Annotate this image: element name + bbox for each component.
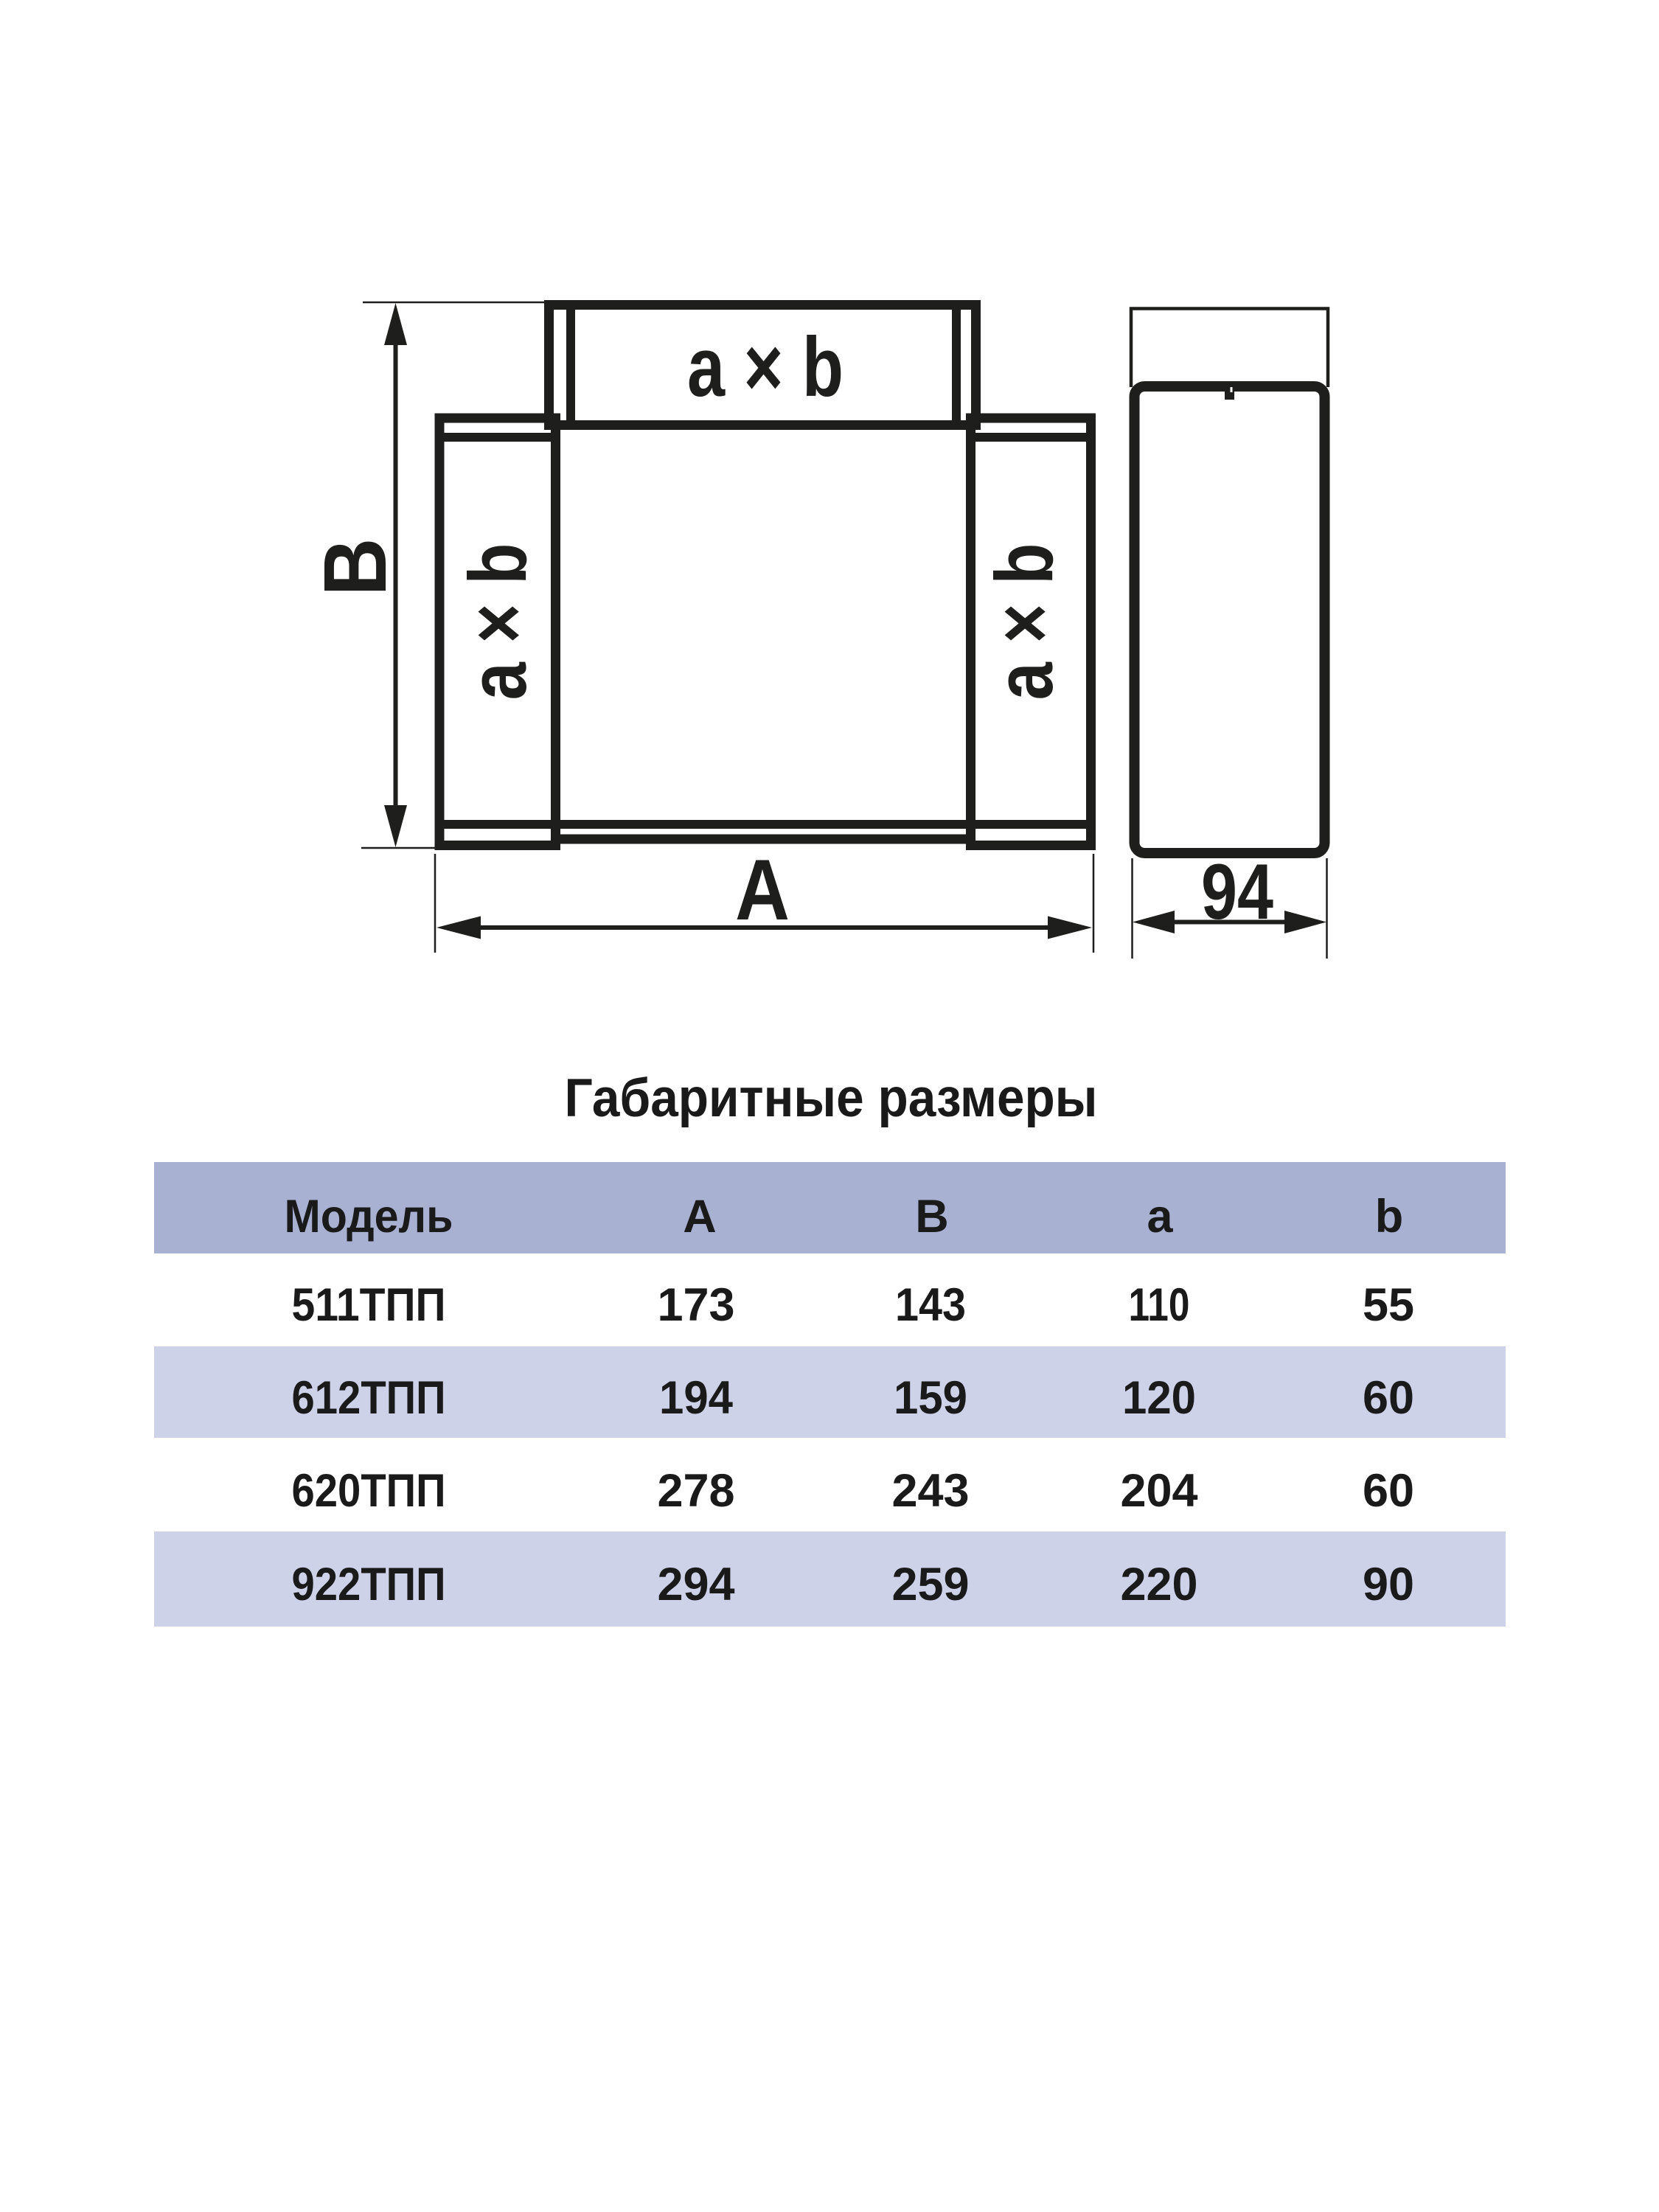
svg-text:620ТПП: 620ТПП [292, 1465, 446, 1517]
svg-text:612ТПП: 612ТПП [292, 1372, 446, 1424]
svg-text:a × b: a × b [453, 543, 543, 700]
svg-text:259: 259 [891, 1559, 969, 1610]
svg-text:922ТПП: 922ТПП [292, 1559, 446, 1610]
svg-text:a × b: a × b [687, 321, 844, 414]
svg-text:220: 220 [1120, 1559, 1197, 1610]
svg-text:Модель: Модель [285, 1191, 453, 1242]
svg-text:a: a [1147, 1191, 1173, 1242]
svg-text:a × b: a × b [979, 543, 1070, 700]
svg-text:143: 143 [895, 1279, 966, 1331]
svg-text:110: 110 [1129, 1279, 1190, 1331]
svg-text:90: 90 [1363, 1559, 1414, 1610]
svg-text:194: 194 [659, 1372, 733, 1424]
svg-text:159: 159 [894, 1372, 967, 1424]
svg-text:94: 94 [1201, 847, 1273, 936]
svg-text:511ТПП: 511ТПП [292, 1279, 446, 1331]
svg-text:173: 173 [657, 1279, 734, 1331]
svg-text:278: 278 [657, 1465, 734, 1517]
svg-text:120: 120 [1122, 1372, 1196, 1424]
svg-text:B: B [305, 538, 405, 597]
svg-text:243: 243 [891, 1465, 969, 1517]
svg-text:55: 55 [1363, 1279, 1414, 1331]
svg-text:A: A [683, 1191, 717, 1242]
svg-text:A: A [735, 841, 790, 938]
svg-text:b: b [1375, 1191, 1403, 1242]
svg-text:B: B [915, 1191, 949, 1242]
svg-text:Габаритные размеры: Габаритные размеры [565, 1068, 1098, 1128]
svg-text:60: 60 [1363, 1372, 1414, 1424]
svg-text:204: 204 [1120, 1465, 1197, 1517]
svg-text:60: 60 [1363, 1465, 1414, 1517]
svg-text:294: 294 [657, 1559, 734, 1610]
